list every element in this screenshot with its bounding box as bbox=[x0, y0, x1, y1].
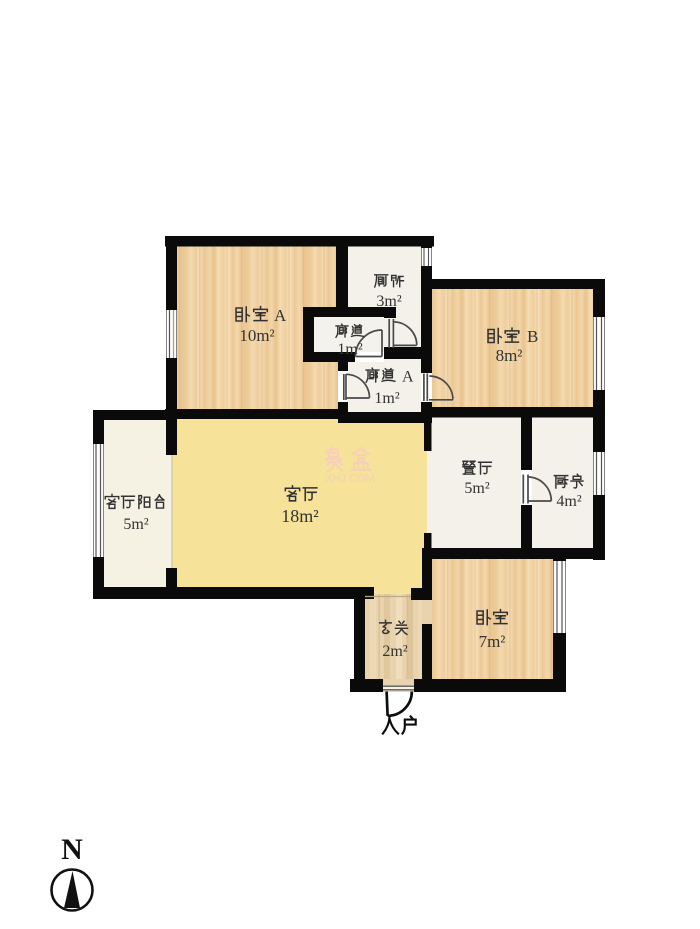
svg-text:B: B bbox=[527, 327, 538, 346]
svg-text:7m²: 7m² bbox=[479, 632, 506, 651]
svg-text:8m²: 8m² bbox=[496, 346, 523, 365]
svg-text:N: N bbox=[61, 833, 83, 866]
svg-text:XHJ.COM: XHJ.COM bbox=[325, 473, 375, 485]
svg-text:5m²: 5m² bbox=[464, 480, 489, 497]
svg-text:A: A bbox=[402, 369, 414, 386]
svg-text:4m²: 4m² bbox=[556, 493, 581, 510]
svg-text:5m²: 5m² bbox=[123, 516, 148, 533]
svg-text:10m²: 10m² bbox=[239, 326, 274, 345]
svg-text:1m²: 1m² bbox=[374, 390, 399, 407]
svg-text:1m²: 1m² bbox=[337, 341, 362, 358]
svg-text:2m²: 2m² bbox=[382, 643, 407, 660]
svg-text:3m²: 3m² bbox=[376, 293, 401, 310]
svg-text:18m²: 18m² bbox=[281, 506, 318, 526]
svg-text:A: A bbox=[274, 306, 287, 325]
